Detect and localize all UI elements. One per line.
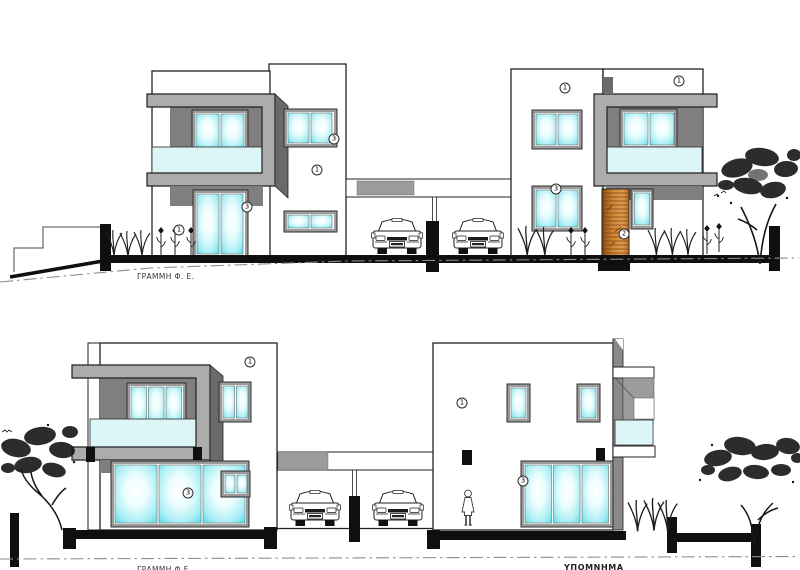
material-badge-1: 1 (245, 357, 256, 368)
material-badge-3: 3 (183, 488, 194, 499)
material-badge-2: 2 (619, 229, 630, 240)
material-badge-3: 3 (551, 184, 562, 195)
material-badge-1: 1 (312, 165, 323, 176)
material-badge-1: 1 (457, 398, 468, 409)
material-badges: 313111321313 (0, 0, 800, 570)
material-badge-1: 1 (560, 83, 571, 94)
material-badge-1: 1 (174, 225, 185, 236)
material-badge-1: 1 (674, 76, 685, 87)
material-badge-3: 3 (329, 134, 340, 145)
text-overlay: ΓΡΑΜΜΗ Φ. Ε. ΓΡΑΜΜΗ Φ.Ε. ΥΠΟΜΝΗΜΑ 313111… (0, 0, 800, 570)
material-badge-3: 3 (518, 476, 529, 487)
material-badge-3: 3 (242, 202, 253, 213)
architectural-elevation-sheet: ΓΡΑΜΜΗ Φ. Ε. ΓΡΑΜΜΗ Φ.Ε. ΥΠΟΜΝΗΜΑ 313111… (0, 0, 800, 570)
